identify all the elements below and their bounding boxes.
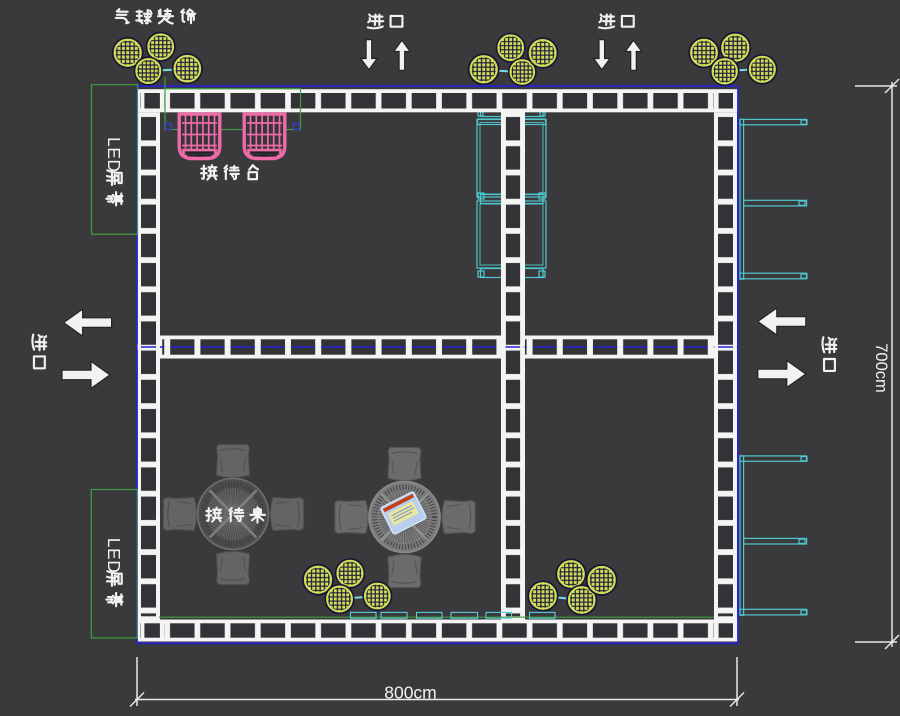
- svg-text:700cm: 700cm: [872, 343, 890, 393]
- svg-text:LED: LED: [104, 538, 124, 574]
- svg-text:LED: LED: [104, 137, 124, 173]
- svg-text:800cm: 800cm: [384, 683, 437, 703]
